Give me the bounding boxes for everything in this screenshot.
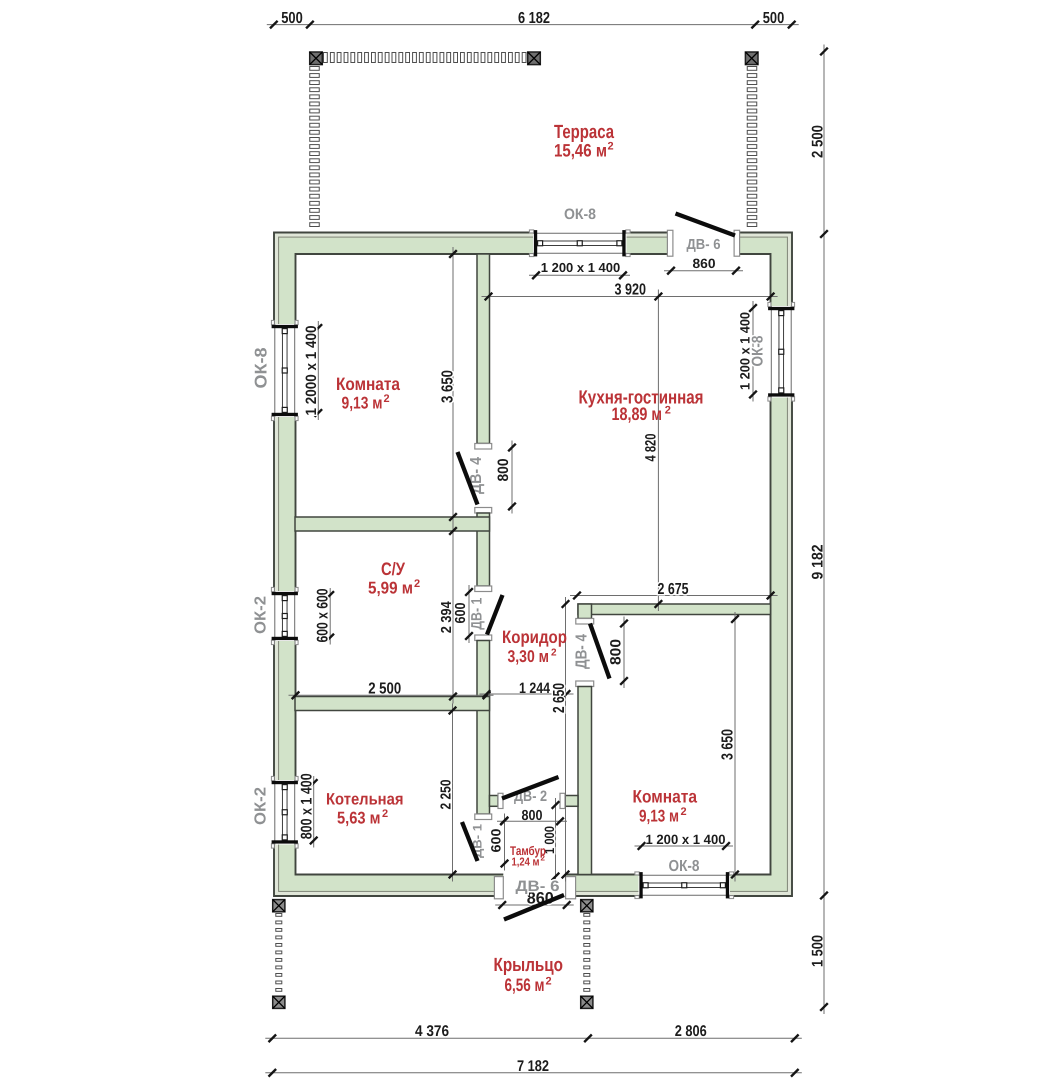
svg-text:2 650: 2 650 xyxy=(551,683,568,713)
svg-text:2: 2 xyxy=(608,141,614,153)
svg-text:5,63 м: 5,63 м xyxy=(337,809,381,828)
svg-text:800: 800 xyxy=(522,808,543,824)
svg-text:2: 2 xyxy=(681,806,687,818)
svg-text:500: 500 xyxy=(763,10,785,27)
svg-text:2 500: 2 500 xyxy=(810,125,827,158)
svg-text:18,89 м: 18,89 м xyxy=(612,404,663,424)
svg-text:3,30 м: 3,30 м xyxy=(508,647,550,666)
svg-text:600: 600 xyxy=(453,603,469,624)
svg-text:9,13 м: 9,13 м xyxy=(639,807,679,826)
svg-text:ОК-2: ОК-2 xyxy=(253,596,270,634)
svg-text:1,24 м: 1,24 м xyxy=(512,857,540,869)
svg-text:3 920: 3 920 xyxy=(615,282,647,299)
svg-text:Котельная: Котельная xyxy=(326,791,404,809)
svg-text:ДВ- 4: ДВ- 4 xyxy=(574,634,591,669)
svg-text:800: 800 xyxy=(495,459,512,482)
svg-text:ОК-8: ОК-8 xyxy=(564,206,596,223)
svg-text:2: 2 xyxy=(384,393,390,405)
svg-text:2 250: 2 250 xyxy=(439,780,455,810)
svg-text:4 376: 4 376 xyxy=(415,1023,449,1040)
svg-text:ДВ- 1: ДВ- 1 xyxy=(469,598,486,630)
svg-text:7 182: 7 182 xyxy=(517,1058,549,1075)
svg-text:6 182: 6 182 xyxy=(518,10,550,27)
svg-text:2: 2 xyxy=(414,578,420,590)
svg-text:2: 2 xyxy=(546,976,552,988)
svg-text:2 675: 2 675 xyxy=(658,581,689,598)
svg-text:800 x 1 400: 800 x 1 400 xyxy=(299,773,316,839)
svg-text:ДВ- 6: ДВ- 6 xyxy=(687,237,721,253)
svg-text:600 x 600: 600 x 600 xyxy=(315,589,332,643)
svg-text:2: 2 xyxy=(382,808,388,820)
svg-text:2 806: 2 806 xyxy=(675,1023,707,1040)
svg-text:ДВ- 6: ДВ- 6 xyxy=(516,878,560,895)
svg-text:3 650: 3 650 xyxy=(440,370,457,403)
svg-text:6,56 м: 6,56 м xyxy=(505,975,545,995)
svg-text:ОК-8: ОК-8 xyxy=(750,335,767,366)
svg-text:1 200 x 1 400: 1 200 x 1 400 xyxy=(541,260,621,275)
svg-text:1 500: 1 500 xyxy=(810,935,827,967)
svg-text:860: 860 xyxy=(693,256,716,271)
svg-text:Комната: Комната xyxy=(633,787,698,807)
svg-text:ОК-8: ОК-8 xyxy=(252,348,271,389)
svg-text:ОК-8: ОК-8 xyxy=(669,858,700,875)
svg-text:600: 600 xyxy=(489,829,504,853)
svg-text:Комната: Комната xyxy=(336,374,401,394)
svg-text:Крыльцо: Крыльцо xyxy=(494,955,564,976)
svg-text:4 820: 4 820 xyxy=(643,434,660,462)
svg-text:1 244: 1 244 xyxy=(519,680,551,697)
svg-text:2: 2 xyxy=(541,854,546,863)
svg-text:1 200 x 1 400: 1 200 x 1 400 xyxy=(646,832,726,847)
svg-text:С/У: С/У xyxy=(381,559,406,579)
svg-text:3 650: 3 650 xyxy=(720,729,737,760)
svg-text:5,99 м: 5,99 м xyxy=(368,579,413,598)
svg-text:2: 2 xyxy=(665,405,671,417)
svg-text:9,13 м: 9,13 м xyxy=(342,394,383,413)
svg-text:9 182: 9 182 xyxy=(810,545,827,580)
svg-text:2: 2 xyxy=(551,648,557,659)
svg-text:Коридор: Коридор xyxy=(502,627,567,647)
svg-text:15,46 м: 15,46 м xyxy=(554,141,607,161)
svg-text:ОК-2: ОК-2 xyxy=(253,787,270,825)
svg-text:500: 500 xyxy=(281,10,303,27)
svg-text:1 2000 x 1 400: 1 2000 x 1 400 xyxy=(303,326,320,416)
svg-text:800: 800 xyxy=(608,639,625,665)
svg-text:2 500: 2 500 xyxy=(368,681,401,698)
